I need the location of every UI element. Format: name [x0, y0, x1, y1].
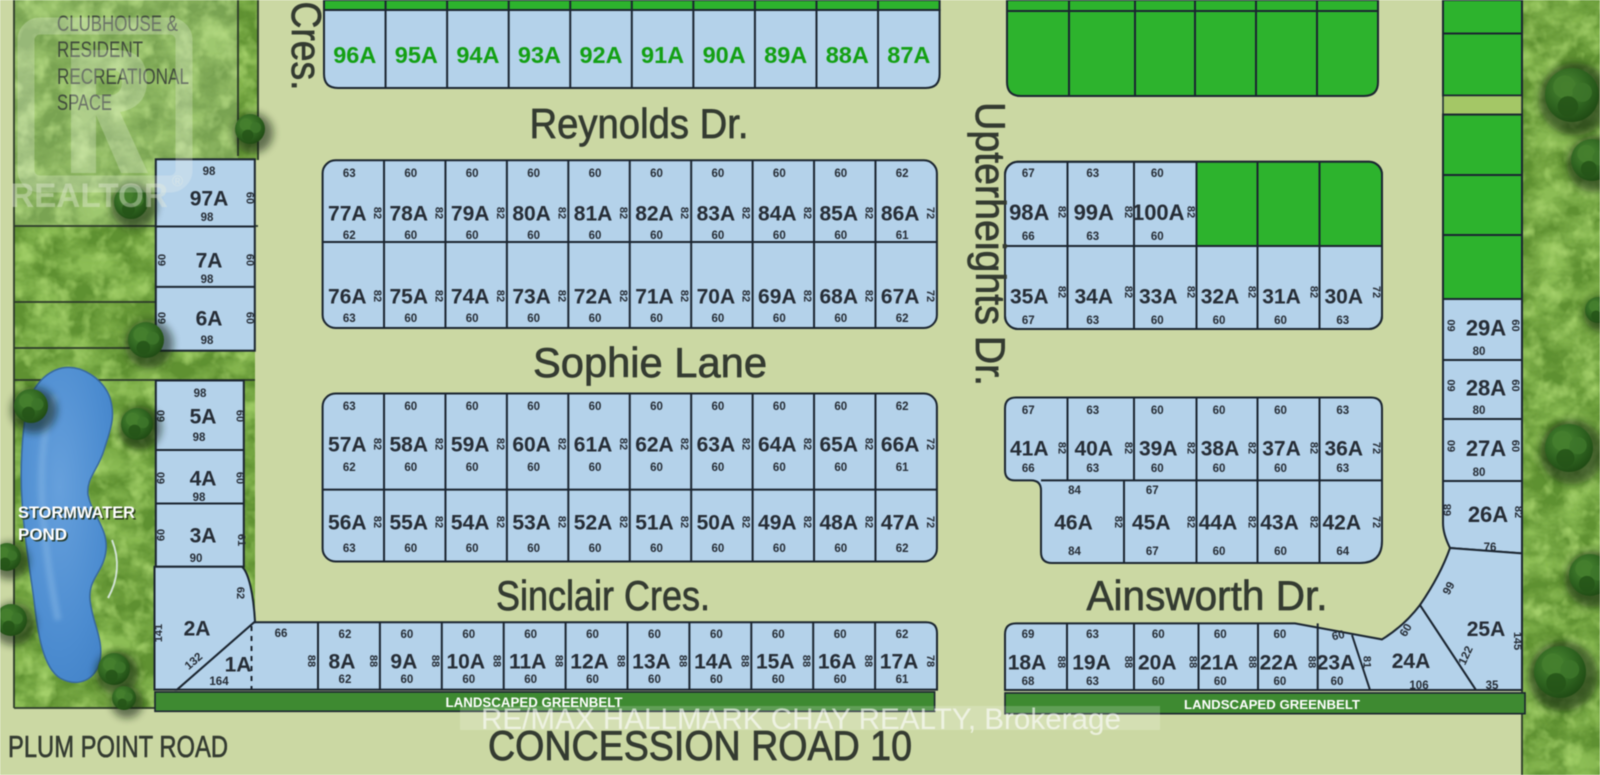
svg-text:61A: 61A: [574, 434, 613, 457]
svg-text:21A: 21A: [1200, 652, 1239, 675]
svg-text:60: 60: [710, 629, 723, 641]
svg-text:60: 60: [650, 462, 663, 474]
svg-text:24A: 24A: [1392, 650, 1431, 673]
svg-text:72: 72: [924, 516, 936, 528]
svg-text:141: 141: [153, 624, 165, 642]
svg-text:60: 60: [466, 313, 479, 325]
svg-text:82: 82: [617, 516, 629, 528]
svg-text:96A: 96A: [333, 42, 376, 68]
svg-text:PLUM POINT ROAD: PLUM POINT ROAD: [8, 729, 228, 764]
svg-text:68: 68: [1442, 504, 1454, 516]
svg-text:60: 60: [234, 472, 246, 484]
svg-text:60: 60: [711, 168, 724, 180]
svg-text:60: 60: [404, 313, 417, 325]
svg-text:69: 69: [1022, 629, 1035, 641]
svg-text:4A: 4A: [190, 468, 217, 491]
svg-text:84: 84: [1068, 485, 1081, 497]
svg-text:98: 98: [193, 432, 206, 444]
svg-text:82: 82: [617, 290, 629, 302]
svg-text:60: 60: [834, 401, 847, 413]
svg-text:60: 60: [527, 401, 540, 413]
svg-text:60: 60: [650, 230, 663, 242]
svg-text:60: 60: [589, 230, 602, 242]
svg-text:60: 60: [466, 462, 479, 474]
svg-text:82: 82: [432, 438, 444, 450]
svg-text:88: 88: [1055, 656, 1067, 668]
svg-text:60: 60: [404, 230, 417, 242]
svg-text:80: 80: [1473, 405, 1486, 417]
svg-text:83A: 83A: [697, 203, 736, 226]
svg-text:48A: 48A: [819, 512, 858, 535]
svg-text:60: 60: [834, 313, 847, 325]
svg-text:60: 60: [650, 168, 663, 180]
svg-text:82: 82: [801, 516, 813, 528]
svg-text:28A: 28A: [1466, 375, 1506, 400]
svg-text:60: 60: [834, 543, 847, 555]
svg-text:60: 60: [1151, 315, 1164, 327]
svg-text:62: 62: [339, 674, 352, 686]
svg-text:Cres.: Cres.: [283, 2, 330, 91]
svg-text:10A: 10A: [446, 651, 485, 674]
svg-text:60: 60: [404, 462, 417, 474]
svg-text:63: 63: [1086, 676, 1099, 688]
svg-text:34A: 34A: [1074, 286, 1113, 309]
svg-text:60: 60: [1214, 676, 1227, 688]
svg-text:82: 82: [371, 438, 383, 450]
svg-text:76A: 76A: [328, 286, 367, 309]
svg-text:62: 62: [896, 168, 909, 180]
svg-text:62: 62: [339, 629, 352, 641]
svg-text:98: 98: [194, 388, 207, 400]
svg-text:62: 62: [896, 313, 909, 325]
svg-text:61: 61: [235, 534, 247, 546]
svg-text:60: 60: [1213, 546, 1226, 558]
svg-text:53A: 53A: [512, 512, 551, 535]
svg-text:19A: 19A: [1072, 652, 1111, 675]
svg-text:60: 60: [1274, 315, 1287, 327]
svg-text:82: 82: [1112, 516, 1124, 528]
svg-text:RE/MAX HALLMARK CHAY REALTY, B: RE/MAX HALLMARK CHAY REALTY, Brokerage: [481, 703, 1121, 736]
svg-text:82: 82: [555, 516, 567, 528]
svg-text:60: 60: [1151, 463, 1164, 475]
svg-text:64: 64: [1336, 546, 1349, 558]
svg-text:Ainsworth Dr.: Ainsworth Dr.: [1087, 572, 1328, 619]
svg-text:®: ®: [172, 173, 183, 190]
svg-text:60: 60: [773, 462, 786, 474]
svg-text:63: 63: [1336, 463, 1349, 475]
svg-text:98: 98: [201, 212, 214, 224]
svg-text:82A: 82A: [635, 203, 674, 226]
svg-text:82: 82: [801, 207, 813, 219]
svg-text:66: 66: [275, 628, 288, 640]
svg-text:60: 60: [773, 230, 786, 242]
svg-text:66A: 66A: [881, 434, 920, 457]
svg-text:82: 82: [555, 438, 567, 450]
svg-text:LANDSCAPED GREENBELT: LANDSCAPED GREENBELT: [1184, 697, 1360, 712]
svg-text:82: 82: [1056, 286, 1068, 298]
svg-text:60: 60: [1274, 546, 1287, 558]
svg-text:60A: 60A: [512, 434, 551, 457]
svg-text:82: 82: [1185, 516, 1197, 528]
svg-text:16A: 16A: [818, 651, 857, 674]
svg-text:7A: 7A: [196, 250, 223, 273]
svg-text:60: 60: [462, 629, 475, 641]
svg-text:49A: 49A: [758, 512, 797, 535]
svg-text:82: 82: [1246, 286, 1258, 298]
svg-text:88: 88: [800, 655, 812, 667]
svg-text:1A: 1A: [225, 654, 252, 677]
svg-text:60: 60: [527, 543, 540, 555]
svg-text:Upterheights Dr.: Upterheights Dr.: [967, 102, 1014, 386]
svg-text:88A: 88A: [826, 42, 869, 68]
svg-text:60: 60: [711, 543, 724, 555]
svg-text:60: 60: [1273, 676, 1286, 688]
svg-text:60: 60: [773, 168, 786, 180]
svg-text:60: 60: [650, 313, 663, 325]
svg-text:82: 82: [1512, 506, 1524, 518]
svg-text:77A: 77A: [328, 203, 367, 226]
svg-text:60: 60: [466, 168, 479, 180]
svg-text:Sinclair Cres.: Sinclair Cres.: [496, 572, 710, 619]
svg-text:67A: 67A: [881, 286, 920, 309]
svg-text:60: 60: [1446, 379, 1458, 391]
svg-text:13A: 13A: [632, 651, 671, 674]
svg-text:82: 82: [1246, 516, 1258, 528]
svg-text:62: 62: [896, 629, 909, 641]
svg-text:61: 61: [896, 462, 909, 474]
svg-text:72: 72: [924, 290, 936, 302]
svg-text:63: 63: [1086, 463, 1099, 475]
svg-text:82: 82: [1122, 286, 1134, 298]
svg-text:60: 60: [404, 543, 417, 555]
svg-text:82: 82: [740, 438, 752, 450]
svg-text:82: 82: [801, 290, 813, 302]
svg-text:88: 88: [1246, 656, 1258, 668]
svg-text:94A: 94A: [456, 42, 499, 68]
svg-text:60: 60: [1213, 463, 1226, 475]
svg-text:38A: 38A: [1201, 438, 1240, 461]
svg-text:82: 82: [1185, 442, 1197, 454]
svg-text:82: 82: [1185, 206, 1197, 218]
svg-text:82: 82: [432, 516, 444, 528]
svg-text:60: 60: [1213, 315, 1226, 327]
svg-text:63: 63: [1086, 629, 1099, 641]
svg-text:60: 60: [772, 629, 785, 641]
svg-text:93A: 93A: [518, 42, 561, 68]
svg-text:98: 98: [201, 335, 214, 347]
svg-text:82: 82: [1122, 442, 1134, 454]
svg-text:82: 82: [432, 207, 444, 219]
svg-text:60: 60: [711, 313, 724, 325]
svg-text:82: 82: [432, 290, 444, 302]
svg-text:60: 60: [244, 254, 256, 266]
svg-text:60: 60: [527, 230, 540, 242]
svg-text:60: 60: [1446, 319, 1458, 331]
svg-text:57A: 57A: [328, 434, 367, 457]
svg-text:63: 63: [1336, 315, 1349, 327]
svg-text:63: 63: [1336, 405, 1349, 417]
svg-text:60: 60: [586, 629, 599, 641]
svg-text:97A: 97A: [190, 188, 229, 211]
svg-text:92A: 92A: [579, 42, 622, 68]
svg-text:82: 82: [1246, 442, 1258, 454]
svg-text:82: 82: [371, 290, 383, 302]
svg-text:60: 60: [527, 313, 540, 325]
svg-text:82: 82: [740, 516, 752, 528]
svg-text:82: 82: [862, 516, 874, 528]
svg-text:60: 60: [156, 529, 168, 541]
svg-text:51A: 51A: [635, 512, 674, 535]
svg-text:60: 60: [650, 401, 663, 413]
svg-text:60: 60: [234, 410, 246, 422]
svg-text:82: 82: [1308, 286, 1320, 298]
svg-text:78A: 78A: [389, 203, 428, 226]
svg-text:60: 60: [400, 674, 413, 686]
svg-text:82: 82: [678, 438, 690, 450]
svg-text:60: 60: [648, 629, 661, 641]
svg-text:60: 60: [1331, 676, 1344, 688]
svg-text:67: 67: [1022, 315, 1035, 327]
svg-text:82: 82: [1056, 442, 1068, 454]
svg-text:78: 78: [924, 655, 936, 667]
svg-text:72: 72: [924, 207, 936, 219]
svg-text:82: 82: [740, 207, 752, 219]
svg-text:60: 60: [773, 313, 786, 325]
svg-text:63: 63: [1086, 315, 1099, 327]
svg-text:STORMWATER: STORMWATER: [18, 503, 135, 522]
svg-text:63: 63: [343, 543, 356, 555]
svg-text:Reynolds Dr.: Reynolds Dr.: [530, 100, 749, 147]
svg-text:60: 60: [524, 674, 537, 686]
svg-text:82: 82: [801, 438, 813, 450]
svg-text:27A: 27A: [1466, 436, 1506, 461]
svg-text:88: 88: [429, 655, 441, 667]
svg-text:44A: 44A: [1199, 512, 1238, 535]
svg-text:61: 61: [896, 674, 909, 686]
svg-text:60: 60: [834, 462, 847, 474]
svg-text:60: 60: [711, 401, 724, 413]
svg-text:82: 82: [678, 207, 690, 219]
svg-text:60: 60: [1152, 629, 1165, 641]
svg-text:15A: 15A: [756, 651, 795, 674]
svg-text:73A: 73A: [512, 286, 551, 309]
svg-text:82: 82: [862, 438, 874, 450]
svg-text:60: 60: [589, 462, 602, 474]
svg-text:2A: 2A: [184, 618, 211, 641]
svg-text:60: 60: [834, 230, 847, 242]
svg-text:POND: POND: [18, 525, 67, 544]
svg-text:70A: 70A: [697, 286, 736, 309]
svg-text:63: 63: [343, 168, 356, 180]
svg-text:60: 60: [589, 168, 602, 180]
svg-text:66: 66: [1022, 231, 1035, 243]
svg-text:43A: 43A: [1260, 512, 1299, 535]
svg-text:60: 60: [772, 674, 785, 686]
svg-text:50A: 50A: [697, 512, 736, 535]
svg-text:88: 88: [862, 655, 874, 667]
svg-text:56A: 56A: [328, 512, 367, 535]
svg-text:98: 98: [193, 492, 206, 504]
svg-text:60: 60: [400, 629, 413, 641]
svg-text:60: 60: [1213, 405, 1226, 417]
svg-text:18A: 18A: [1008, 652, 1047, 675]
svg-text:82: 82: [617, 438, 629, 450]
svg-text:60: 60: [650, 543, 663, 555]
svg-text:145: 145: [1511, 632, 1523, 650]
svg-text:52A: 52A: [574, 512, 613, 535]
svg-text:33A: 33A: [1139, 286, 1178, 309]
svg-text:32A: 32A: [1201, 286, 1240, 309]
svg-text:8A: 8A: [329, 651, 356, 674]
svg-text:82: 82: [617, 207, 629, 219]
svg-text:81A: 81A: [574, 203, 613, 226]
svg-text:60: 60: [1509, 319, 1521, 331]
svg-text:82: 82: [371, 207, 383, 219]
svg-text:20A: 20A: [1138, 652, 1177, 675]
svg-text:55A: 55A: [389, 512, 428, 535]
svg-text:63A: 63A: [697, 434, 736, 457]
svg-text:88: 88: [738, 655, 750, 667]
svg-text:60: 60: [404, 401, 417, 413]
svg-text:12A: 12A: [570, 651, 609, 674]
svg-text:5A: 5A: [190, 406, 217, 429]
svg-text:164: 164: [209, 676, 229, 688]
svg-text:88: 88: [367, 655, 379, 667]
svg-text:82: 82: [555, 207, 567, 219]
svg-text:62: 62: [343, 230, 356, 242]
svg-text:100A: 100A: [1132, 200, 1185, 225]
svg-text:98A: 98A: [1009, 200, 1049, 225]
svg-text:69A: 69A: [758, 286, 797, 309]
svg-text:60: 60: [1274, 405, 1287, 417]
svg-text:35: 35: [1486, 680, 1499, 692]
svg-text:60: 60: [711, 230, 724, 242]
svg-text:74A: 74A: [451, 286, 490, 309]
svg-text:82: 82: [371, 516, 383, 528]
svg-text:72: 72: [1370, 286, 1382, 298]
svg-text:60: 60: [527, 462, 540, 474]
svg-text:Sophie Lane: Sophie Lane: [533, 339, 767, 386]
svg-text:82: 82: [494, 290, 506, 302]
svg-text:88: 88: [676, 655, 688, 667]
svg-text:60: 60: [1152, 676, 1165, 688]
svg-text:60: 60: [834, 629, 847, 641]
svg-text:82: 82: [678, 290, 690, 302]
svg-text:60: 60: [1509, 379, 1521, 391]
svg-text:62: 62: [896, 543, 909, 555]
svg-text:60: 60: [527, 168, 540, 180]
svg-text:60: 60: [1151, 168, 1164, 180]
svg-text:82: 82: [740, 290, 752, 302]
svg-text:60: 60: [157, 254, 169, 266]
svg-text:60: 60: [1151, 405, 1164, 417]
svg-text:82: 82: [862, 207, 874, 219]
svg-text:88: 88: [305, 655, 317, 667]
svg-text:72: 72: [1370, 516, 1382, 528]
svg-text:60: 60: [404, 168, 417, 180]
svg-text:60: 60: [1446, 440, 1458, 452]
svg-text:98: 98: [201, 274, 214, 286]
svg-text:88: 88: [1187, 656, 1199, 668]
svg-text:75A: 75A: [389, 286, 428, 309]
svg-text:23A: 23A: [1317, 652, 1356, 675]
svg-text:60: 60: [244, 312, 256, 324]
svg-text:46A: 46A: [1054, 512, 1093, 535]
svg-text:95A: 95A: [395, 42, 438, 68]
svg-text:62: 62: [234, 587, 246, 599]
svg-text:60: 60: [1151, 231, 1164, 243]
svg-text:60: 60: [773, 401, 786, 413]
svg-text:60: 60: [1274, 463, 1287, 475]
svg-text:62: 62: [896, 401, 909, 413]
svg-text:71A: 71A: [635, 286, 674, 309]
svg-text:85A: 85A: [819, 203, 858, 226]
svg-text:63: 63: [343, 313, 356, 325]
svg-text:26A: 26A: [1468, 502, 1508, 527]
svg-text:60: 60: [524, 629, 537, 641]
svg-text:80: 80: [1473, 467, 1486, 479]
svg-text:9A: 9A: [390, 651, 417, 674]
svg-text:37A: 37A: [1262, 438, 1301, 461]
svg-text:82: 82: [1308, 442, 1320, 454]
svg-text:79A: 79A: [451, 203, 490, 226]
svg-text:47A: 47A: [881, 512, 920, 535]
svg-text:67: 67: [1022, 168, 1035, 180]
svg-text:82: 82: [1185, 286, 1197, 298]
svg-text:35A: 35A: [1010, 286, 1049, 309]
svg-text:60: 60: [156, 472, 168, 484]
svg-text:91A: 91A: [641, 42, 684, 68]
svg-text:88: 88: [491, 655, 503, 667]
svg-text:60: 60: [834, 674, 847, 686]
svg-text:60: 60: [589, 313, 602, 325]
svg-text:67: 67: [1146, 546, 1159, 558]
svg-text:81: 81: [1360, 656, 1372, 668]
svg-text:17A: 17A: [880, 651, 919, 674]
svg-text:88: 88: [615, 655, 627, 667]
svg-text:72: 72: [924, 438, 936, 450]
svg-text:60: 60: [1273, 629, 1286, 641]
svg-text:39A: 39A: [1139, 438, 1178, 461]
svg-text:66: 66: [1022, 463, 1035, 475]
svg-text:67: 67: [1146, 485, 1159, 497]
svg-text:67: 67: [1022, 405, 1035, 417]
svg-text:60: 60: [586, 674, 599, 686]
svg-text:60: 60: [1509, 440, 1521, 452]
svg-text:68: 68: [1022, 676, 1035, 688]
svg-text:82: 82: [1056, 206, 1068, 218]
svg-text:72: 72: [1370, 442, 1382, 454]
svg-text:89A: 89A: [764, 42, 807, 68]
svg-text:31A: 31A: [1262, 286, 1301, 309]
svg-text:99A: 99A: [1074, 200, 1114, 225]
svg-text:40A: 40A: [1074, 438, 1113, 461]
svg-text:98: 98: [203, 166, 216, 178]
svg-text:11A: 11A: [509, 651, 546, 674]
svg-text:88: 88: [553, 655, 565, 667]
svg-text:59A: 59A: [451, 434, 490, 457]
svg-text:90: 90: [190, 553, 203, 565]
svg-text:87A: 87A: [887, 42, 930, 68]
svg-text:88: 88: [1122, 656, 1134, 668]
svg-text:60: 60: [773, 543, 786, 555]
svg-text:36A: 36A: [1324, 438, 1363, 461]
svg-text:84A: 84A: [758, 203, 797, 226]
svg-text:90A: 90A: [703, 42, 746, 68]
svg-text:82: 82: [678, 516, 690, 528]
svg-text:60: 60: [466, 401, 479, 413]
svg-text:60: 60: [244, 192, 256, 204]
